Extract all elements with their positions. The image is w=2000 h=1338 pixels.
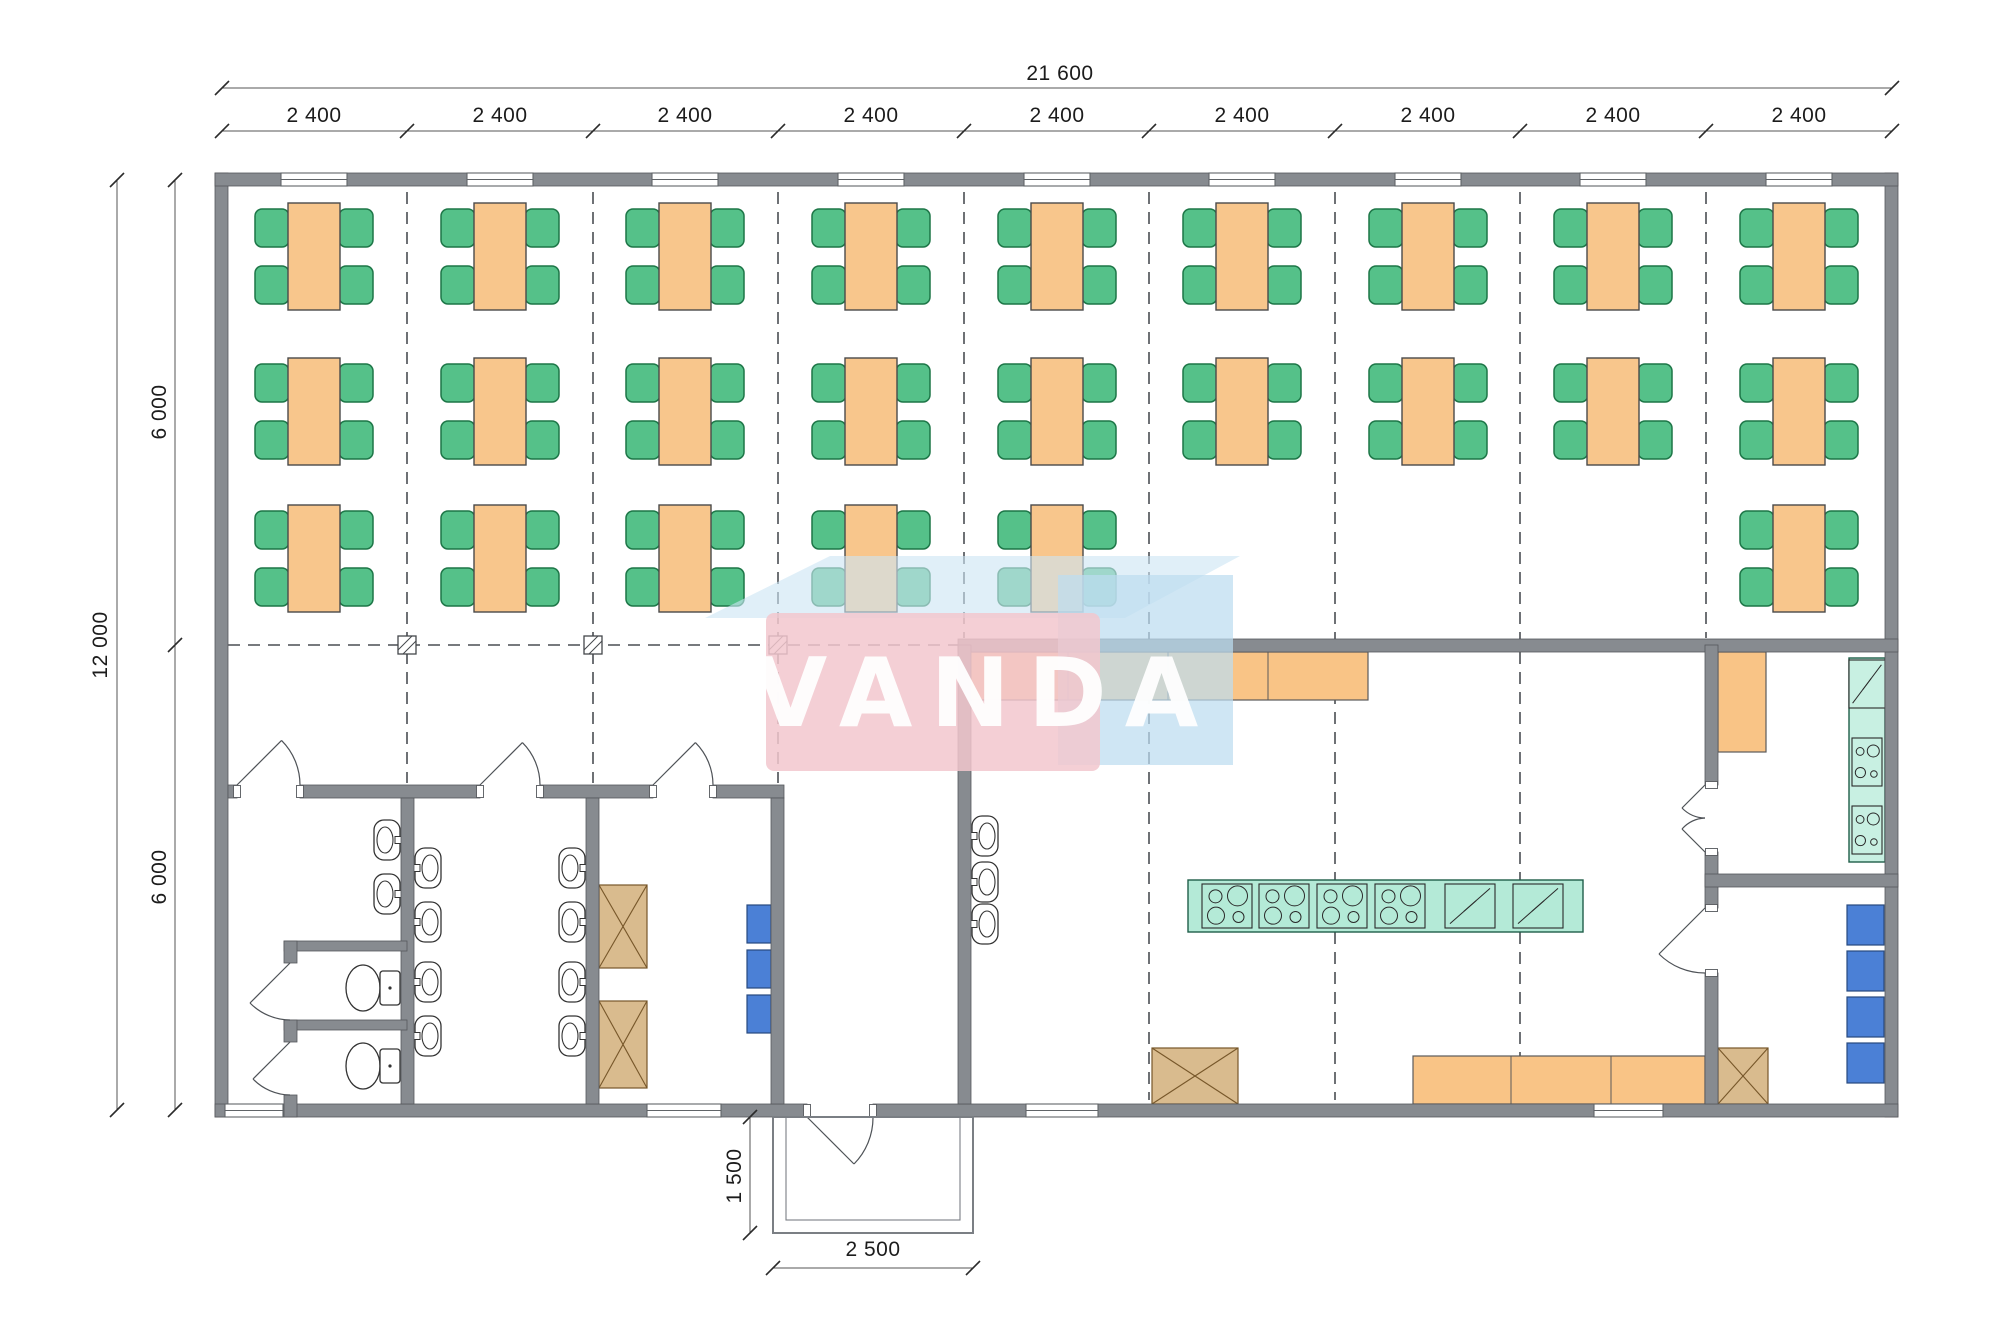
table-top [845,203,897,310]
dining-table [812,203,930,310]
floor-plan-canvas: 21 600 12 000 6 000 6 000 1 500 2 500 2 … [0,0,2000,1338]
window [1766,173,1832,186]
door-jamb [537,786,544,798]
door-jamb [710,786,717,798]
table-top [474,203,526,310]
dining-table [1740,505,1858,612]
storage-box [599,1001,647,1088]
wall [873,1104,1026,1117]
chair [1183,421,1217,459]
wall [533,173,652,186]
wash-basin [559,962,587,1002]
table-top [659,505,711,612]
door-jamb [870,1105,877,1117]
chair [1183,364,1217,402]
dim-bay-width: 2 400 [657,104,712,127]
wall [1646,173,1766,186]
door-swing [1682,808,1705,818]
dim-bay-width: 2 400 [1400,104,1455,127]
table-top [1216,203,1268,310]
dining-table [441,358,559,465]
window [467,173,533,186]
table-top [1773,358,1825,465]
chair [1824,421,1858,459]
dining-table [626,203,744,310]
chair [1369,364,1403,402]
chair [1453,266,1487,304]
chair [626,364,660,402]
dining-table [1369,203,1487,310]
door-leaf [807,1117,854,1164]
table-top [1587,203,1639,310]
door-jamb [804,1105,811,1117]
door-jamb [477,786,484,798]
wash-basin [413,902,441,942]
porch-outline [773,1117,973,1233]
chair [441,209,475,247]
chair [339,421,373,459]
door-swing [282,740,300,785]
watermark: VANDA [705,556,1240,771]
wall [904,173,1024,186]
chair [998,364,1032,402]
wall [713,785,784,798]
window [647,1104,721,1117]
table-top [659,203,711,310]
chair [1453,209,1487,247]
floor-plan-drawing: 21 600 12 000 6 000 6 000 1 500 2 500 2 … [0,0,2000,1338]
cooker-body [1852,738,1882,786]
door-leaf [1682,785,1705,808]
wash-basin [413,1016,441,1056]
window [1594,1104,1663,1117]
chair [812,266,846,304]
chair [1554,364,1588,402]
chair [1369,209,1403,247]
chair [1824,568,1858,606]
chair [998,511,1032,549]
wall [347,173,467,186]
wall [215,173,281,186]
fridge-unit [1445,884,1495,928]
dining-table [441,203,559,310]
chair [812,421,846,459]
window [225,1104,283,1117]
chair [255,209,289,247]
chair [339,266,373,304]
door-swing [1659,954,1705,973]
table-top [1031,358,1083,465]
cooker-body [1852,806,1882,854]
door-leaf [253,1042,290,1079]
chair [896,421,930,459]
wall [1705,973,1718,1104]
dining-table [255,505,373,612]
chair [1824,266,1858,304]
chair [525,266,559,304]
dim-bay-width: 2 400 [1214,104,1269,127]
table-top [288,203,340,310]
chair [896,364,930,402]
chair [1082,266,1116,304]
grid-column [584,636,602,654]
tall-cabinet [1718,652,1766,752]
dining-table [255,358,373,465]
table-top [1402,203,1454,310]
chair [710,568,744,606]
entrance-porch [773,1117,973,1233]
wall [215,173,228,1117]
chair [812,364,846,402]
blue-cabinet [1847,905,1884,945]
chair [1554,266,1588,304]
window [1209,173,1275,186]
wall [1705,645,1718,785]
wall [771,798,784,1104]
chair [339,364,373,402]
chair [710,511,744,549]
dining-table [1554,358,1672,465]
wall [586,798,599,1104]
chair [896,266,930,304]
cooker-unit [1202,884,1252,928]
storage-box [1718,1048,1768,1104]
fridge-unit [1513,884,1563,928]
wash-basin [559,902,587,942]
wash-basin [559,848,587,888]
table-top [845,358,897,465]
dim-porch-depth: 1 500 [723,1148,746,1203]
table-top [288,358,340,465]
chair [710,364,744,402]
chair [1740,421,1774,459]
table-top [1587,358,1639,465]
door-swing [695,743,713,785]
chair [1267,364,1301,402]
chair [441,568,475,606]
dim-bay-width: 2 400 [286,104,341,127]
chair [896,209,930,247]
door-jamb [1706,849,1718,856]
door-leaf [237,740,282,785]
dining-table [1369,358,1487,465]
wash-basin [413,848,441,888]
table-top [474,505,526,612]
dining-table [812,358,930,465]
chair [1740,209,1774,247]
table-top [474,358,526,465]
wall [1461,173,1580,186]
wash-basin [559,1016,587,1056]
door-swing [250,1003,290,1020]
dining-table [1740,203,1858,310]
chair [1369,266,1403,304]
wash-basin [374,820,402,860]
door-leaf [1682,829,1705,852]
chair [626,421,660,459]
window [1026,1104,1098,1117]
wall [284,1095,297,1117]
wall [1098,1104,1594,1117]
chair [255,266,289,304]
chair [812,511,846,549]
storage-box [1152,1048,1238,1104]
wall [721,1104,807,1117]
chair [1082,511,1116,549]
chair [1267,421,1301,459]
table-top [1216,358,1268,465]
chair [1824,511,1858,549]
door-swing [1682,818,1705,829]
chair [525,568,559,606]
chair [1453,364,1487,402]
chair [525,511,559,549]
toilet-bowl [346,1043,380,1089]
chair [441,421,475,459]
door-leaf [480,743,522,785]
chair [1554,209,1588,247]
chair [1638,209,1672,247]
chair [1082,209,1116,247]
chair [1082,421,1116,459]
window [281,173,347,186]
chair [626,209,660,247]
wall [284,1020,407,1030]
wall [1663,1104,1898,1117]
dining-table [626,505,744,612]
blue-cabinet [747,995,771,1033]
dining-table [1183,203,1301,310]
chair [441,266,475,304]
chair [710,266,744,304]
dining-table [626,358,744,465]
cooker-unit [1375,884,1425,928]
toilet-flush [388,1064,391,1067]
table-top [659,358,711,465]
dim-bay-width: 2 400 [1029,104,1084,127]
wash-basin [413,962,441,1002]
chair [1740,511,1774,549]
window [1024,173,1090,186]
dim-bay-width: 2 400 [1585,104,1640,127]
dim-bay-width: 2 400 [472,104,527,127]
door-jamb [234,786,241,798]
wall [1275,173,1395,186]
window [1395,173,1461,186]
chair [441,511,475,549]
wall [284,941,297,963]
window [652,173,718,186]
door-leaf [250,963,290,1003]
door-jamb [297,786,304,798]
table-top [288,505,340,612]
chair [896,511,930,549]
chair [812,209,846,247]
chair [255,364,289,402]
door-jamb [1706,782,1718,789]
cooker-unit [1317,884,1367,928]
wall [300,785,480,798]
chair [998,209,1032,247]
chair [339,568,373,606]
chair [626,568,660,606]
wash-basin [374,874,402,914]
wash-basin [970,862,998,902]
window [1580,173,1646,186]
chair [626,266,660,304]
grid-column [398,636,416,654]
chair [255,511,289,549]
chair [1740,266,1774,304]
chair [1638,421,1672,459]
chair [1082,364,1116,402]
table-top [1031,203,1083,310]
dining-table [441,505,559,612]
dining-table [998,358,1116,465]
dining-table [998,203,1116,310]
wall [283,1104,647,1117]
blue-cabinet [747,905,771,943]
wall [284,1020,297,1042]
chair [441,364,475,402]
table-top [1773,505,1825,612]
dim-total-depth: 12 000 [89,611,112,678]
chair [525,421,559,459]
chair [525,364,559,402]
door-jamb [1706,905,1718,912]
chair [255,421,289,459]
dim-depth-back: 6 000 [148,384,171,439]
toilet-flush [388,986,391,989]
cooker-unit [1259,884,1309,928]
wall [215,1104,225,1117]
window [838,173,904,186]
chair [710,421,744,459]
dining-table [1554,203,1672,310]
blue-cabinet [1847,951,1884,991]
chair [1740,364,1774,402]
door-swing [522,743,540,785]
table-top [1402,358,1454,465]
toilet [346,965,400,1011]
chair [1638,266,1672,304]
dim-depth-front: 6 000 [148,849,171,904]
wall [1705,874,1898,887]
door-leaf [1659,908,1705,954]
blue-cabinet [1847,1043,1884,1083]
dim-total-width: 21 600 [1026,62,1093,85]
kitchen-counter [1413,1056,1705,1104]
chair [1267,209,1301,247]
chair [1824,209,1858,247]
chair [1554,421,1588,459]
blue-cabinet [1847,997,1884,1037]
fridge-unit [1849,660,1885,708]
chair [339,511,373,549]
wash-basin [970,816,998,856]
wash-basin [970,904,998,944]
table-top [1773,203,1825,310]
chair [626,511,660,549]
door-swing [253,1079,290,1095]
toilet [346,1043,400,1089]
dining-table [255,203,373,310]
wall [284,941,407,951]
door-swing [854,1117,873,1164]
dining-table [1740,358,1858,465]
chair [1369,421,1403,459]
toilet-bowl [346,965,380,1011]
chair [1453,421,1487,459]
wall [718,173,838,186]
chair [255,568,289,606]
chair [998,421,1032,459]
chair [1638,364,1672,402]
chair [710,209,744,247]
dim-bay-width: 2 400 [1771,104,1826,127]
dim-bay-width: 2 400 [843,104,898,127]
chair [998,266,1032,304]
cooker-unit [1852,806,1882,854]
dim-porch-width: 2 500 [845,1238,900,1261]
storage-box [599,885,647,968]
chair [1740,568,1774,606]
dining-table [1183,358,1301,465]
chair [525,209,559,247]
chair [1267,266,1301,304]
chair [1183,266,1217,304]
chair [1183,209,1217,247]
cooker-unit [1852,738,1882,786]
door-jamb [1706,970,1718,977]
door-jamb [650,786,657,798]
blue-cabinet [747,950,771,988]
porch-step [786,1117,960,1220]
wall [1832,173,1898,186]
wall [540,785,653,798]
chair [339,209,373,247]
wall [1090,173,1209,186]
door-leaf [653,743,695,785]
chair [1824,364,1858,402]
watermark-text: VANDA [754,639,1217,749]
